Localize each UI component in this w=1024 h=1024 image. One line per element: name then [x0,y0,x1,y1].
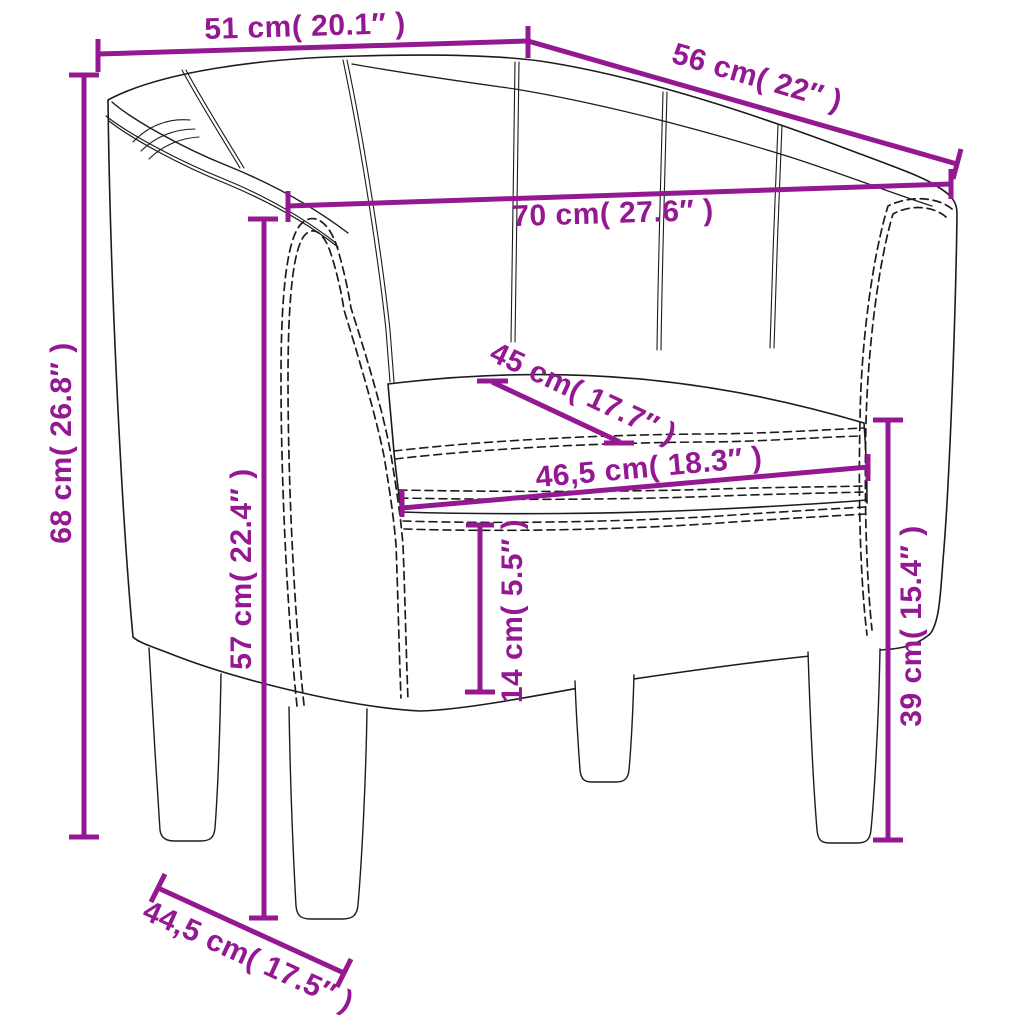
dimension-label-base-height: 14 cm( 5.5″ ) [498,519,528,703]
leg-back-right [575,675,634,782]
chair-dimension-drawing [0,0,1024,1024]
left-arm-piping [281,219,408,706]
leg-front-left [289,707,367,919]
left-arm-band-upper [112,102,348,233]
dimension-base-height [465,525,495,692]
dimension-label-top-width: 51 cm( 20.1″ ) [204,9,406,45]
cushion-left-corner [388,384,394,452]
dimension-label-side-height: 39 cm( 15.4″ ) [897,525,927,726]
leg-back-left [149,648,221,841]
dimension-label-front-height: 57 cm( 22.4″ ) [227,468,257,669]
leg-front-right [808,649,880,843]
dimension-label-total-height: 68 cm( 26.8″ ) [47,342,77,543]
dimension-label-inner-width: 70 cm( 27.6″ ) [512,196,714,232]
diagram-stage: 51 cm( 20.1″ ) 56 cm( 22″ ) 70 cm( 27.6″… [0,0,1024,1024]
